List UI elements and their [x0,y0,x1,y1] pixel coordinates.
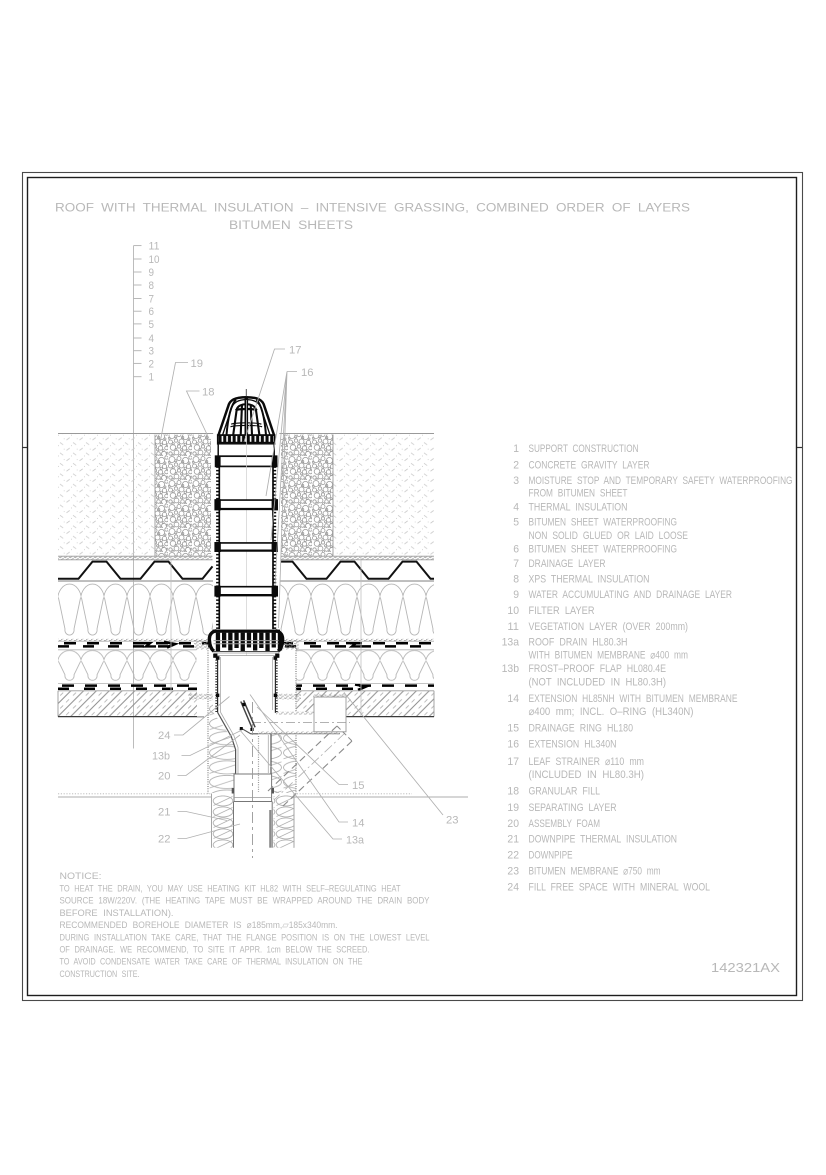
svg-text:23: 23 [507,866,519,878]
svg-text:GRANULAR FILL: GRANULAR FILL [529,786,601,798]
svg-text:ASSEMBLY FOAM: ASSEMBLY FOAM [529,818,601,830]
svg-text:VEGETATION LAYER (OVER 200mm): VEGETATION LAYER (OVER 200mm) [529,621,689,633]
svg-text:ROOF DRAIN HL80.3H: ROOF DRAIN HL80.3H [529,637,628,649]
svg-text:8: 8 [513,574,519,586]
svg-text:BITUMEN SHEET WATERPROOFING: BITUMEN SHEET WATERPROOFING [529,544,678,556]
svg-text:21: 21 [158,807,171,819]
svg-text:3: 3 [513,475,519,487]
svg-text:14: 14 [507,693,519,705]
svg-text:DOWNPIPE: DOWNPIPE [529,850,573,862]
svg-text:22: 22 [507,850,519,862]
svg-text:SEPARATING LAYER: SEPARATING LAYER [529,802,617,814]
svg-text:19: 19 [191,358,204,370]
svg-text:BEFORE INSTALLATION).: BEFORE INSTALLATION). [60,908,174,919]
svg-text:CONSTRUCTION SITE.: CONSTRUCTION SITE. [60,969,140,980]
svg-text:10: 10 [149,254,160,266]
svg-text:23: 23 [446,815,459,827]
svg-text:7: 7 [513,558,519,570]
svg-text:21: 21 [507,834,519,846]
svg-text:RECOMMENDED BOREHOLE DIAMETER: RECOMMENDED BOREHOLE DIAMETER IS ⌀185mm,… [60,920,338,931]
svg-text:MOISTURE STOP AND TEMPORARY SA: MOISTURE STOP AND TEMPORARY SAFETY WATER… [529,475,793,487]
svg-text:WATER ACCUMULATING AND DRAINAG: WATER ACCUMULATING AND DRAINAGE LAYER [529,589,733,601]
svg-text:FROM BITUMEN SHEET: FROM BITUMEN SHEET [529,488,628,500]
svg-text:TO AVOID CONDENSATE WATER TAKE: TO AVOID CONDENSATE WATER TAKE CARE OF T… [60,957,363,968]
svg-text:11: 11 [149,241,160,253]
svg-text:DOWNPIPE THERMAL INSULATION: DOWNPIPE THERMAL INSULATION [529,834,678,846]
svg-text:FILTER LAYER: FILTER LAYER [529,605,595,617]
svg-text:1: 1 [513,443,519,455]
svg-text:NOTICE:: NOTICE: [60,871,102,882]
svg-text:5: 5 [149,319,155,331]
svg-text:THERMAL INSULATION: THERMAL INSULATION [529,502,628,514]
svg-text:17: 17 [507,756,519,768]
svg-text:BITUMEN SHEETS: BITUMEN SHEETS [229,218,353,232]
svg-text:(NOT INCLUDED IN HL80.3H): (NOT INCLUDED IN HL80.3H) [529,677,667,689]
svg-text:15: 15 [507,723,519,735]
svg-text:OF DRAINAGE. WE RECOMMEND, TO: OF DRAINAGE. WE RECOMMEND, TO SITE IT AP… [60,945,370,956]
svg-text:TO HEAT THE DRAIN, YOU MAY USE: TO HEAT THE DRAIN, YOU MAY USE HEATING K… [60,884,401,895]
svg-text:DRAINAGE RING HL180: DRAINAGE RING HL180 [529,723,634,735]
svg-text:CONCRETE GRAVITY LAYER: CONCRETE GRAVITY LAYER [529,460,650,472]
svg-text:FROST–PROOF FLAP HL080.4E: FROST–PROOF FLAP HL080.4E [529,663,667,675]
svg-text:13a: 13a [502,637,519,649]
svg-text:⌀400 mm; INCL. O–RING (HL340N): ⌀400 mm; INCL. O–RING (HL340N) [529,706,694,718]
svg-text:4: 4 [149,333,155,345]
svg-text:2: 2 [513,460,519,472]
svg-text:BITUMEN SHEET WATERPROOFING: BITUMEN SHEET WATERPROOFING [529,517,678,529]
svg-text:17: 17 [289,345,302,357]
svg-text:8: 8 [149,280,155,292]
svg-text:6: 6 [513,544,519,556]
svg-text:19: 19 [507,802,519,814]
svg-text:EXTENSION HL340N: EXTENSION HL340N [529,739,617,751]
svg-text:24: 24 [158,730,171,742]
svg-text:22: 22 [158,834,171,846]
svg-text:2: 2 [149,358,155,370]
svg-text:1: 1 [149,372,155,384]
svg-text:24: 24 [507,882,519,894]
svg-text:WITH BITUMEN MEMBRANE ⌀400 mm: WITH BITUMEN MEMBRANE ⌀400 mm [529,650,689,662]
svg-text:9: 9 [149,267,155,279]
svg-text:DURING INSTALLATION TAKE CARE,: DURING INSTALLATION TAKE CARE, THAT THE … [60,932,431,943]
svg-text:SUPPORT CONSTRUCTION: SUPPORT CONSTRUCTION [529,443,639,455]
svg-text:DRAINAGE LAYER: DRAINAGE LAYER [529,558,606,570]
svg-text:LEAF STRAINER ⌀110 mm: LEAF STRAINER ⌀110 mm [529,756,645,768]
svg-text:BITUMEN MEMBRANE ⌀750 mm: BITUMEN MEMBRANE ⌀750 mm [529,866,661,878]
svg-text:20: 20 [507,818,519,830]
svg-text:18: 18 [507,786,519,798]
svg-text:NON SOLID GLUED OR LAID LOOSE: NON SOLID GLUED OR LAID LOOSE [529,530,689,542]
svg-text:3: 3 [149,346,155,358]
svg-text:16: 16 [301,367,314,379]
svg-text:13b: 13b [152,751,170,763]
svg-text:FILL FREE SPACE WITH MINERAL W: FILL FREE SPACE WITH MINERAL WOOL [529,882,711,894]
svg-text:14: 14 [352,818,365,830]
svg-text:6: 6 [149,306,155,318]
svg-text:142321AX: 142321AX [711,961,781,975]
svg-text:XPS THERMAL INSULATION: XPS THERMAL INSULATION [529,574,650,586]
svg-text:13b: 13b [502,663,519,675]
svg-text:ROOF WITH THERMAL INSULATIO: ROOF WITH THERMAL INSULATION – INTENSIVE… [55,201,690,215]
svg-text:13a: 13a [346,835,364,847]
svg-text:11: 11 [507,621,519,633]
svg-text:(INCLUDED IN HL80.3H): (INCLUDED IN HL80.3H) [529,769,645,781]
svg-text:10: 10 [507,605,519,617]
svg-text:7: 7 [149,293,155,305]
svg-text:16: 16 [507,739,519,751]
svg-text:20: 20 [158,771,171,783]
svg-text:18: 18 [202,387,215,399]
svg-text:15: 15 [352,780,365,792]
svg-text:5: 5 [513,517,519,529]
svg-text:EXTENSION HL85NH WITH BITUMEN: EXTENSION HL85NH WITH BITUMEN MEMBRANE [529,693,738,705]
svg-text:9: 9 [513,589,519,601]
svg-text:4: 4 [513,502,519,514]
svg-text:SOURCE 18W/220V. (THE HEATING: SOURCE 18W/220V. (THE HEATING TAPE MUST … [60,896,430,907]
